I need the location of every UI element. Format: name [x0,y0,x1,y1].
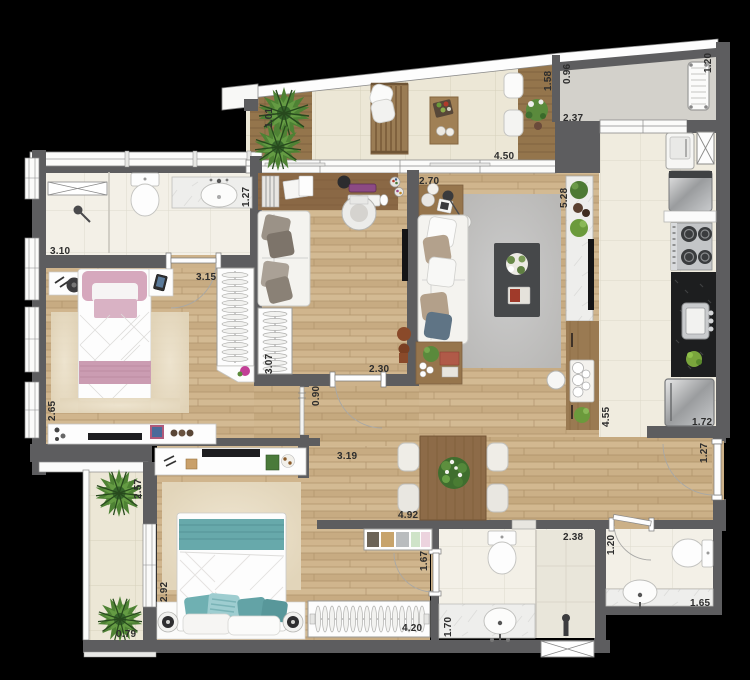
svg-text:1.20: 1.20 [606,534,617,555]
svg-text:4.50: 4.50 [494,151,515,162]
svg-text:2.30: 2.30 [369,364,390,375]
svg-text:4.55: 4.55 [601,406,612,427]
svg-text:3.19: 3.19 [337,451,358,462]
svg-text:1.58: 1.58 [543,70,554,91]
svg-text:1.20: 1.20 [703,52,714,73]
svg-text:2.92: 2.92 [159,581,170,602]
svg-text:1.70: 1.70 [443,616,454,637]
svg-text:4.20: 4.20 [402,623,423,634]
svg-text:0.79: 0.79 [116,629,137,640]
svg-text:1.01: 1.01 [264,107,275,128]
svg-text:2.65: 2.65 [47,400,58,421]
svg-text:0.90: 0.90 [311,385,322,406]
svg-text:1.27: 1.27 [699,442,710,463]
svg-text:3.07: 3.07 [264,353,275,374]
svg-text:1.72: 1.72 [692,417,713,428]
svg-text:2.38: 2.38 [563,532,584,543]
svg-text:3.15: 3.15 [196,272,217,283]
svg-text:4.92: 4.92 [398,510,419,521]
svg-text:1.27: 1.27 [241,186,252,207]
svg-text:1.67: 1.67 [419,550,430,571]
svg-text:5.28: 5.28 [559,187,570,208]
svg-text:1.65: 1.65 [690,598,711,609]
svg-text:2.37: 2.37 [563,113,584,124]
svg-text:0.96: 0.96 [562,63,573,84]
svg-text:2.57: 2.57 [133,478,144,499]
svg-text:3.10: 3.10 [50,246,71,257]
svg-text:2.70: 2.70 [419,176,440,187]
